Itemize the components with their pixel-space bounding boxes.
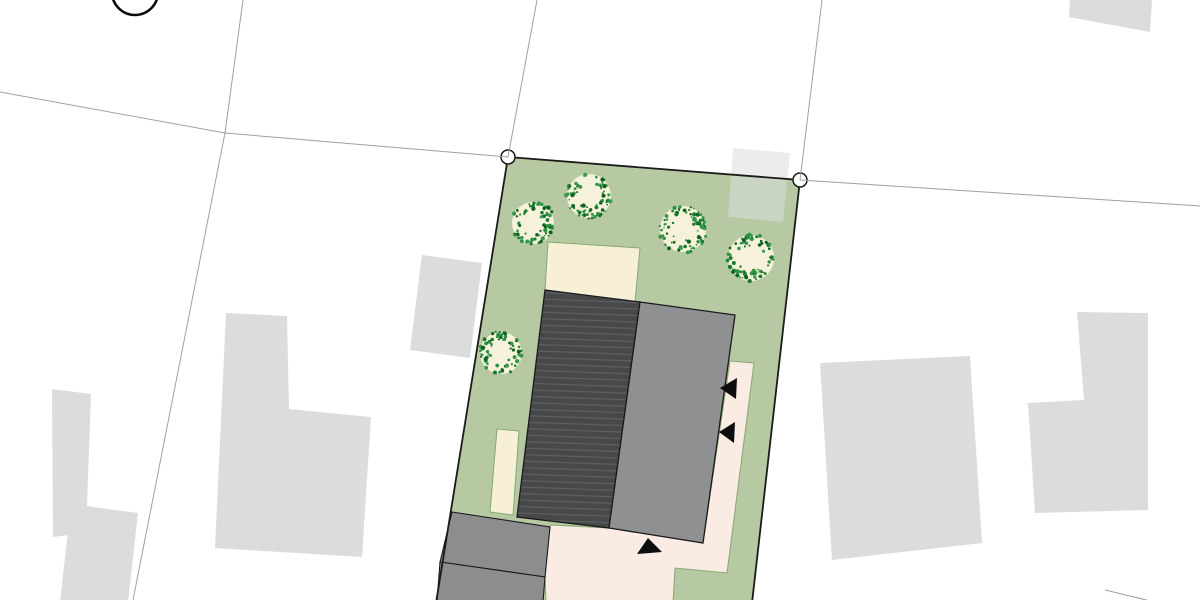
tree-foliage-speckle — [543, 228, 547, 232]
tree-foliage-speckle — [512, 345, 514, 347]
tree-foliage-speckle — [516, 230, 519, 233]
tree-foliage-speckle — [502, 338, 505, 341]
tree-foliage-speckle — [760, 270, 763, 273]
tree-foliage-speckle — [683, 245, 687, 249]
parcel-line — [508, 0, 537, 157]
tree-foliage-speckle — [692, 223, 695, 226]
tree-foliage-speckle — [576, 191, 578, 193]
tree-foliage-speckle — [546, 212, 549, 215]
tree-foliage-speckle — [604, 210, 606, 212]
tree-foliage-speckle — [728, 265, 732, 269]
tree-foliage-speckle — [541, 236, 545, 240]
tree-foliage-speckle — [518, 224, 521, 227]
tree-foliage-speckle — [508, 342, 511, 345]
tree-foliage-speckle — [588, 217, 590, 219]
tree-foliage-speckle — [574, 187, 577, 190]
tree-foliage-speckle — [577, 209, 580, 212]
tree-foliage-speckle — [767, 264, 769, 266]
tree-foliage-speckle — [545, 233, 547, 235]
tree-foliage-speckle — [574, 182, 578, 186]
tree-foliage-speckle — [543, 206, 546, 209]
tree-foliage-speckle — [696, 244, 698, 246]
tree-foliage-speckle — [568, 199, 570, 201]
tree-foliage-speckle — [515, 234, 517, 236]
parcel-line — [800, 0, 822, 180]
tree-foliage-speckle — [606, 202, 608, 204]
tree-foliage-speckle — [548, 235, 550, 237]
tree-foliage-speckle — [771, 258, 773, 260]
tree-foliage-speckle — [742, 242, 744, 244]
tree-foliage-speckle — [511, 363, 513, 365]
tree-foliage-speckle — [753, 275, 756, 278]
tree-foliage-speckle — [501, 369, 504, 372]
tree-foliage-speckle — [586, 206, 588, 208]
tree-foliage-speckle — [505, 364, 509, 368]
tree-foliage-speckle — [658, 235, 662, 239]
tree-foliage-speckle — [691, 216, 693, 218]
tree-foliage-speckle — [735, 273, 739, 277]
tree-foliage-speckle — [763, 272, 765, 274]
tree-foliage-speckle — [742, 277, 744, 279]
tree-foliage-speckle — [601, 194, 605, 198]
tree-foliage-speckle — [525, 239, 529, 243]
tree-foliage-speckle — [584, 209, 586, 211]
tree-foliage-speckle — [484, 366, 488, 370]
tree-foliage-speckle — [701, 216, 704, 219]
tree-foliage-speckle — [546, 224, 550, 228]
tree-foliage-speckle — [596, 204, 598, 206]
tree-foliage-speckle — [493, 370, 497, 374]
tree-foliage-speckle — [529, 240, 532, 243]
tree-foliage-speckle — [759, 275, 763, 279]
tree-foliage-speckle — [743, 270, 746, 273]
tree-foliage-speckle — [538, 241, 541, 244]
tree-foliage-speckle — [544, 235, 546, 237]
tree-foliage-speckle — [704, 225, 706, 227]
tree-foliage-speckle — [520, 239, 524, 243]
tree-foliage-speckle — [687, 239, 691, 243]
tree-foliage-speckle — [735, 242, 738, 245]
tree-foliage-speckle — [659, 225, 661, 227]
tree-foliage-speckle — [607, 193, 610, 196]
tree-foliage-speckle — [753, 273, 755, 275]
neighbor-building — [1069, 0, 1152, 32]
tree-foliage-speckle — [486, 351, 489, 354]
tree-foliage-speckle — [754, 270, 756, 272]
tree-foliage-speckle — [482, 354, 484, 356]
tree-foliage-speckle — [663, 219, 665, 221]
tree-foliage-speckle — [567, 184, 571, 188]
tree-foliage-speckle — [740, 242, 743, 245]
tree-foliage-speckle — [602, 184, 606, 188]
tree-foliage-speckle — [762, 250, 765, 253]
tree-foliage-speckle — [488, 353, 490, 355]
tree-foliage-speckle — [540, 203, 543, 206]
tree-foliage-speckle — [689, 245, 691, 247]
tree-foliage-speckle — [699, 219, 702, 222]
tree-foliage-speckle — [518, 346, 521, 349]
tree-foliage-speckle — [516, 215, 518, 217]
tree-foliage-speckle — [524, 209, 527, 212]
tree-foliage-speckle — [591, 217, 594, 220]
tree-foliage-speckle — [484, 357, 488, 361]
tree-foliage-speckle — [548, 213, 552, 217]
tree-foliage-speckle — [606, 204, 608, 206]
tree-foliage-speckle — [730, 258, 732, 260]
tree-foliage-speckle — [600, 187, 602, 189]
tree-foliage-speckle — [606, 185, 608, 187]
tree-foliage-speckle — [589, 210, 591, 212]
tree-foliage-speckle — [737, 247, 741, 251]
tree-foliage-speckle — [598, 214, 601, 217]
tree-foliage-speckle — [539, 230, 541, 232]
tree-foliage-speckle — [486, 341, 488, 343]
tree-foliage-speckle — [581, 203, 585, 207]
neighbor-building — [410, 255, 482, 358]
tree-foliage-speckle — [531, 207, 535, 211]
tree-foliage-speckle — [540, 211, 543, 214]
tree-foliage-speckle — [507, 358, 510, 361]
neighbor-building — [728, 148, 790, 222]
tree-foliage-speckle — [480, 356, 482, 358]
tree-foliage-speckle — [528, 203, 530, 205]
neighbor-building — [215, 313, 371, 557]
tree-foliage-speckle — [704, 235, 707, 238]
tree-foliage-speckle — [515, 340, 517, 342]
tree-foliage-speckle — [748, 279, 752, 283]
tree-foliage-speckle — [602, 192, 604, 194]
tree-foliage-speckle — [503, 332, 505, 334]
tree-foliage-speckle — [672, 206, 676, 210]
tree-foliage-speckle — [479, 350, 481, 352]
tree-foliage-speckle — [578, 212, 580, 214]
tree-foliage-speckle — [660, 229, 663, 232]
tree-foliage-speckle — [579, 185, 583, 189]
tree-foliage-speckle — [535, 233, 539, 237]
tree-foliage-speckle — [666, 232, 668, 234]
tree-foliage-speckle — [729, 247, 732, 250]
tree-foliage-speckle — [490, 338, 494, 342]
tree-foliage-speckle — [601, 208, 604, 211]
tree-foliage-speckle — [595, 183, 598, 186]
tree-foliage-speckle — [529, 205, 531, 207]
tree-foliage-speckle — [540, 215, 543, 218]
tree-foliage-speckle — [564, 193, 568, 197]
tree-foliage-speckle — [601, 181, 603, 183]
tree-foliage-speckle — [692, 247, 694, 249]
tree-foliage-speckle — [491, 332, 494, 335]
tree-foliage-speckle — [748, 245, 750, 247]
tree-foliage-speckle — [586, 213, 589, 216]
tree-foliage-speckle — [678, 205, 681, 208]
tree-foliage-speckle — [518, 221, 520, 223]
tree-foliage-speckle — [483, 337, 487, 341]
tree-foliage-speckle — [673, 241, 676, 244]
tree-foliage-speckle — [599, 201, 603, 205]
tree-foliage-speckle — [700, 237, 702, 239]
tree-foliage-speckle — [692, 212, 696, 216]
tree-foliage-speckle — [692, 218, 696, 222]
tree-foliage-speckle — [596, 214, 599, 217]
tree-foliage-speckle — [739, 276, 741, 278]
parcel-line — [225, 133, 508, 157]
tree-foliage-speckle — [569, 207, 571, 209]
tree-foliage-speckle — [768, 247, 771, 250]
tree-foliage-speckle — [751, 236, 753, 238]
tree-foliage-speckle — [758, 234, 762, 238]
tree-foliage-speckle — [681, 248, 683, 250]
tree-foliage-speckle — [608, 199, 612, 203]
tree-foliage-speckle — [697, 230, 699, 232]
tree-foliage-speckle — [512, 212, 516, 216]
parcel-line — [800, 180, 1200, 206]
tree-foliage-speckle — [607, 198, 609, 200]
tree-foliage-speckle — [686, 251, 690, 255]
tree-foliage-speckle — [600, 177, 604, 181]
tree-foliage-speckle — [667, 226, 670, 229]
parcel-line — [0, 92, 225, 133]
tree-foliage-speckle — [679, 210, 681, 212]
tree-foliage-speckle — [504, 335, 508, 339]
neighbor-building — [820, 356, 982, 560]
tree-foliage-speckle — [669, 247, 671, 249]
tree-foliage-speckle — [689, 213, 692, 216]
tree-foliage-speckle — [662, 236, 666, 240]
tree-foliage-speckle — [742, 238, 746, 242]
tree-foliage-speckle — [550, 210, 553, 213]
site-plan-canvas — [0, 0, 1200, 600]
neighbor-building — [60, 504, 138, 600]
tree-foliage-speckle — [698, 222, 701, 225]
tree-foliage-speckle — [666, 218, 668, 220]
tree-foliage-speckle — [525, 233, 527, 235]
tree-foliage-speckle — [603, 191, 605, 193]
tree-foliage-speckle — [688, 209, 690, 211]
tree-foliage-speckle — [746, 235, 750, 239]
tree-foliage-speckle — [700, 242, 703, 245]
tree-foliage-speckle — [517, 350, 521, 354]
tree-foliage-speckle — [517, 237, 520, 240]
tree-foliage-speckle — [514, 364, 517, 367]
tree-foliage-speckle — [570, 193, 574, 197]
tree-foliage-speckle — [738, 270, 741, 273]
tree-foliage-speckle — [512, 348, 515, 351]
tree-foliage-speckle — [664, 244, 666, 246]
tree-foliage-speckle — [581, 214, 583, 216]
parcel-line — [1105, 590, 1200, 600]
tree-foliage-speckle — [671, 242, 673, 244]
tree-foliage-speckle — [702, 219, 705, 222]
tree-foliage-speckle — [509, 371, 512, 374]
tree-foliage-speckle — [665, 214, 669, 218]
tree-foliage-speckle — [539, 202, 541, 204]
tree-foliage-speckle — [510, 347, 512, 349]
tree-foliage-speckle — [546, 218, 550, 222]
tree-foliage-speckle — [515, 359, 519, 363]
tree-foliage-speckle — [731, 270, 735, 274]
tree-foliage-speckle — [672, 222, 674, 224]
tree-foliage-speckle — [513, 356, 516, 359]
tree-foliage-speckle — [578, 214, 580, 216]
tree-foliage-speckle — [519, 213, 521, 215]
tree-foliage-speckle — [739, 265, 741, 267]
tree-foliage-speckle — [594, 205, 598, 209]
tree-foliage-speckle — [499, 331, 501, 333]
tree-foliage-speckle — [494, 331, 496, 333]
tree-foliage-speckle — [726, 259, 728, 261]
tree-foliage-speckle — [755, 235, 758, 238]
tree-foliage-speckle — [546, 206, 550, 210]
tree-foliage-speckle — [495, 364, 499, 368]
neighbor-building — [1028, 312, 1148, 513]
tree-foliage-speckle — [500, 336, 503, 339]
tree-foliage-speckle — [549, 230, 553, 234]
tree-foliage-speckle — [490, 343, 493, 346]
tree-foliage-speckle — [768, 243, 771, 246]
tree-foliage-speckle — [698, 211, 700, 213]
partial-circle-symbol — [112, 0, 158, 15]
parcel-line — [225, 0, 243, 133]
tree-foliage-speckle — [591, 213, 594, 216]
tree-canopy — [660, 206, 706, 252]
tree-foliage-speckle — [760, 242, 763, 245]
parcel-line — [133, 133, 225, 600]
tree-foliage-speckle — [673, 235, 675, 237]
tree-foliage-speckle — [773, 259, 775, 261]
tree-foliage-speckle — [534, 238, 536, 240]
tree-foliage-speckle — [693, 208, 695, 210]
tree-foliage-speckle — [730, 254, 732, 256]
tree-foliage-speckle — [663, 227, 665, 229]
tree-foliage-speckle — [664, 223, 666, 225]
tree-foliage-speckle — [732, 261, 736, 265]
site-plan-svg — [0, 0, 1200, 600]
tree-foliage-speckle — [671, 210, 674, 213]
tree-foliage-speckle — [516, 209, 519, 212]
tree-foliage-speckle — [690, 206, 692, 208]
tree-foliage-speckle — [595, 176, 598, 179]
tree-foliage-speckle — [571, 204, 575, 208]
tree-foliage-speckle — [744, 245, 746, 247]
tree-foliage-speckle — [744, 276, 748, 280]
tree-foliage-speckle — [685, 211, 688, 214]
tree-foliage-speckle — [768, 260, 771, 263]
tree-foliage-speckle — [757, 269, 759, 271]
tree-foliage-speckle — [481, 346, 485, 350]
tree-foliage-speckle — [696, 240, 699, 243]
tree-foliage-speckle — [583, 175, 585, 177]
tree-foliage-speckle — [674, 212, 678, 216]
